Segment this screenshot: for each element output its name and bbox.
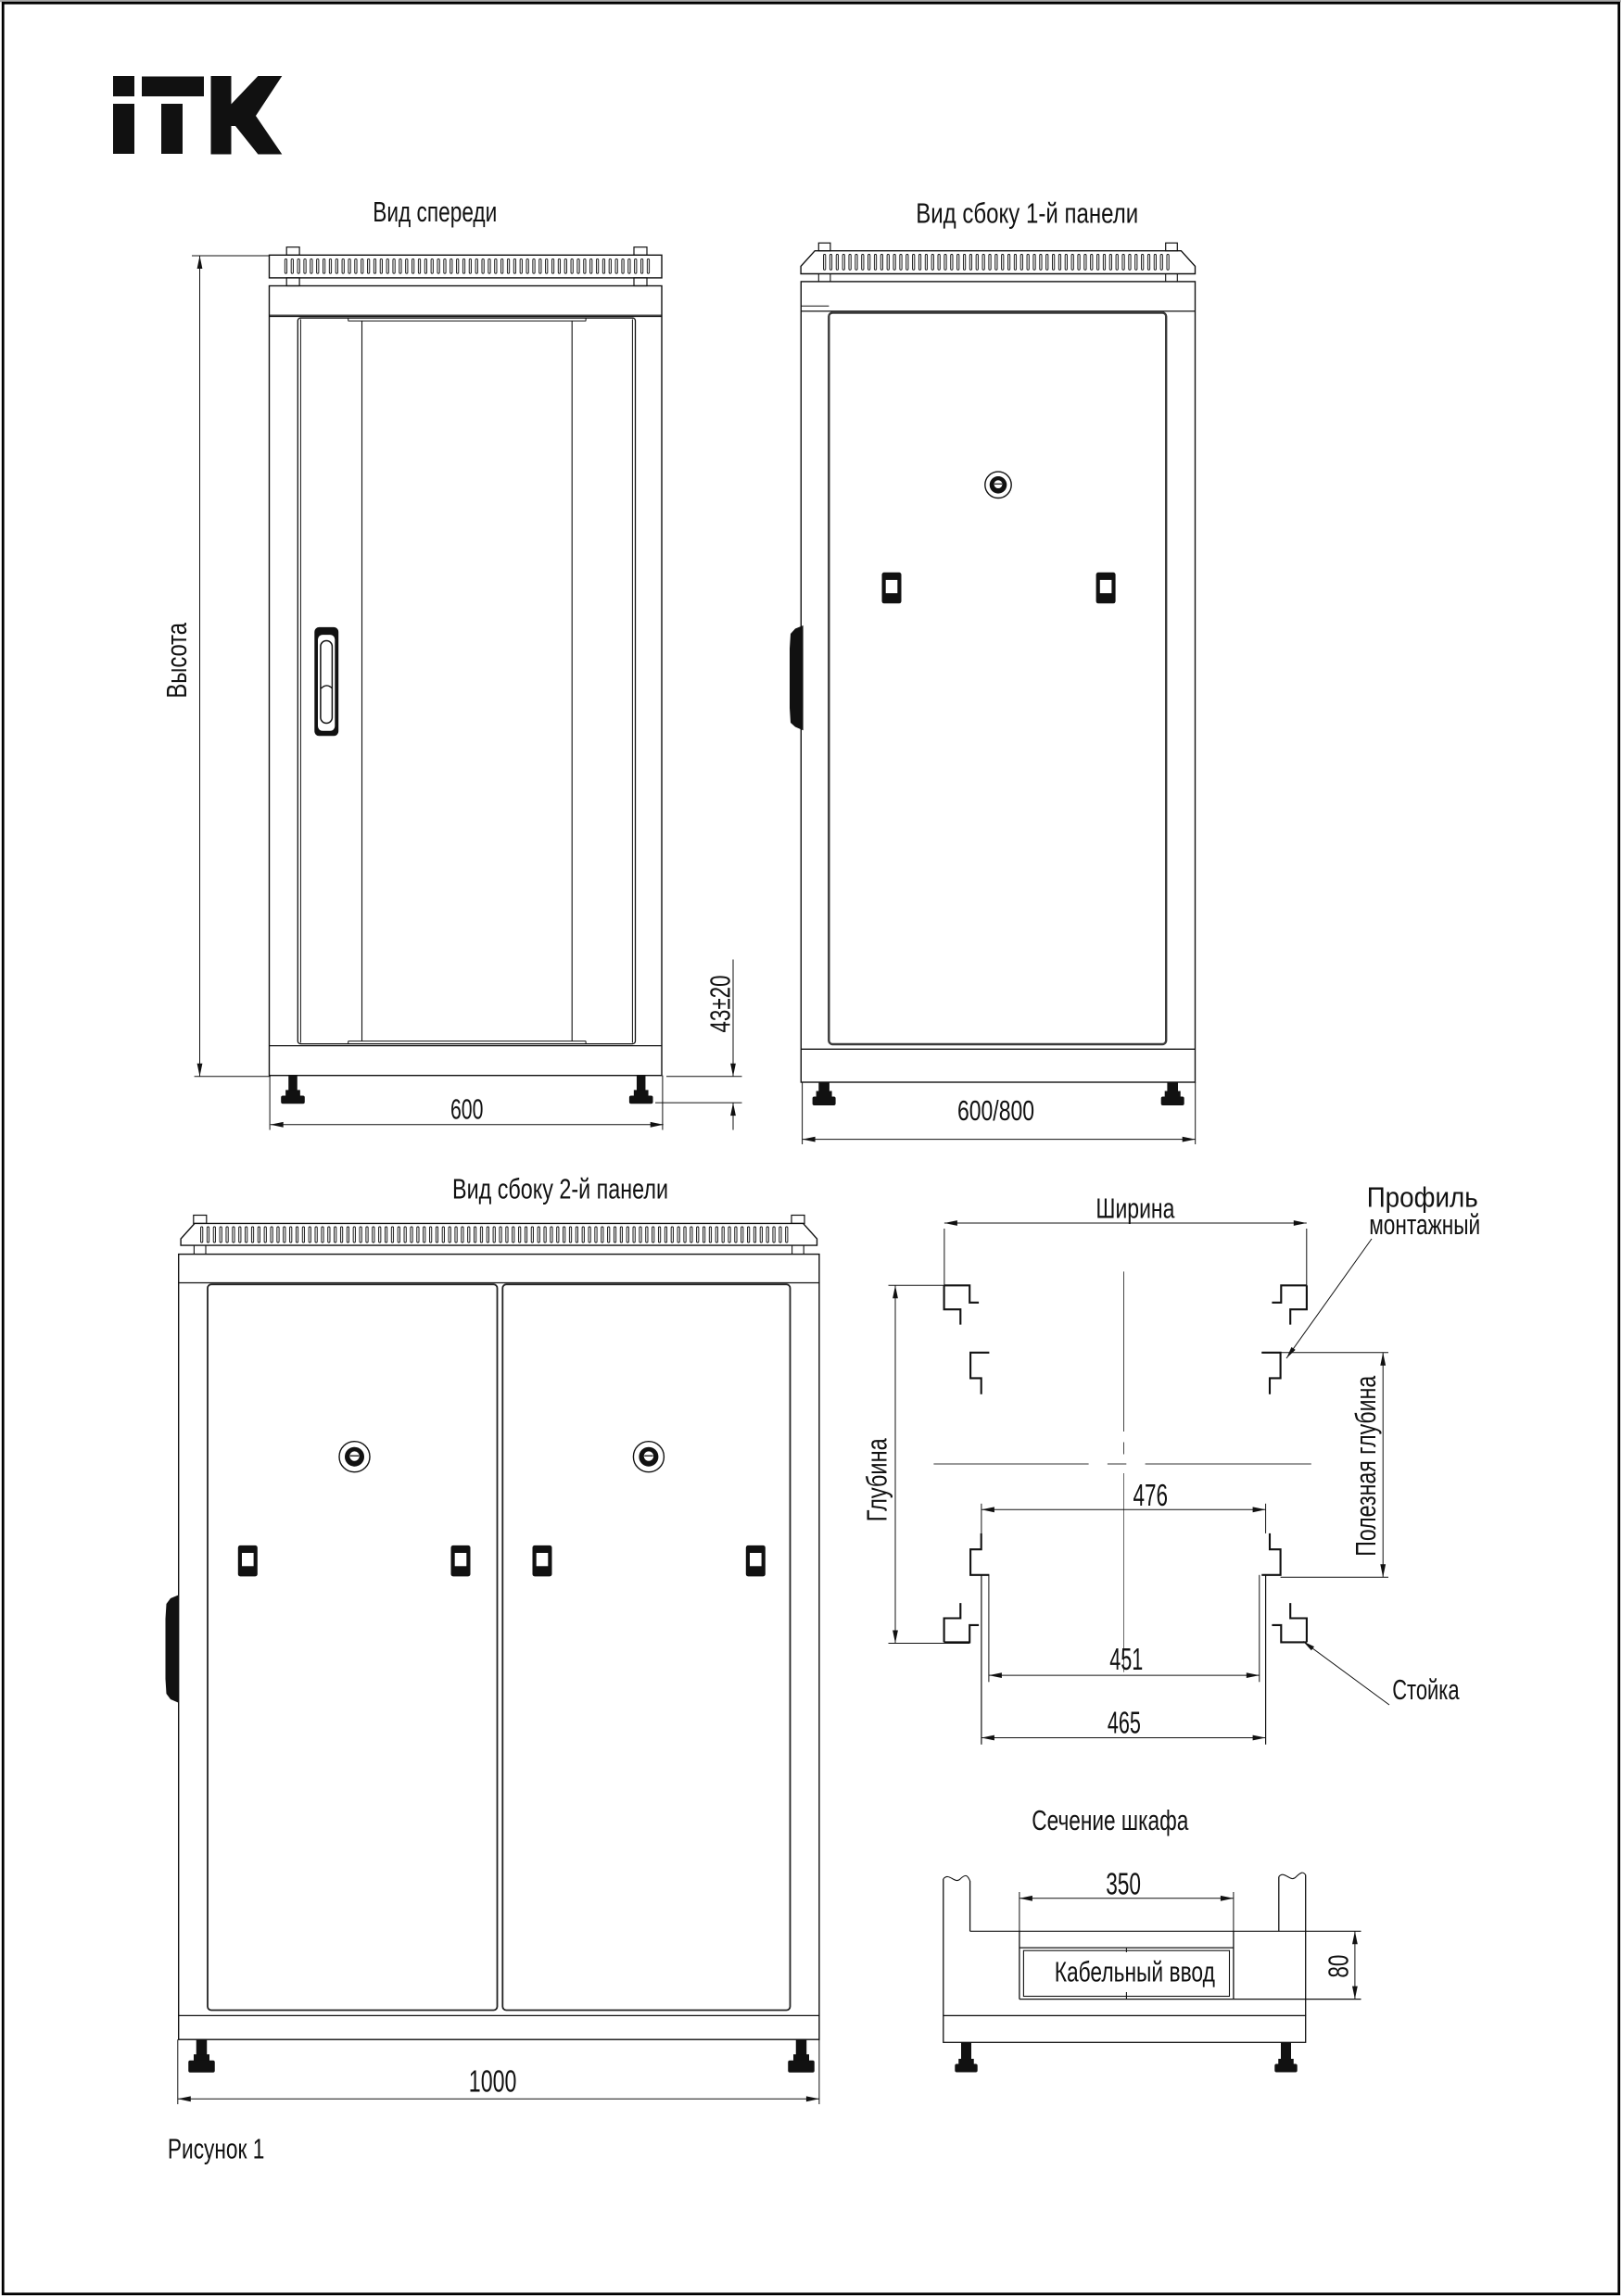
svg-text:Вид сбоку 2-й панели: Вид сбоку 2-й панели [452,1173,668,1205]
svg-text:350: 350 [1106,1866,1141,1900]
svg-text:1000: 1000 [469,2063,517,2098]
svg-text:465: 465 [1108,1706,1141,1740]
svg-text:Сечение шкафа: Сечение шкафа [1032,1804,1189,1836]
svg-text:476: 476 [1133,1478,1168,1512]
svg-text:Полезная глубина: Полезная глубина [1349,1375,1382,1557]
svg-text:Рисунок 1: Рисунок 1 [168,2133,265,2165]
svg-text:Вид сбоку 1-й панели: Вид сбоку 1-й панели [916,197,1138,230]
svg-text:600: 600 [450,1093,484,1126]
svg-text:Стойка: Стойка [1392,1673,1460,1706]
svg-text:80: 80 [1323,1955,1355,1978]
svg-text:Ширина: Ширина [1095,1192,1175,1225]
svg-text:Глубина: Глубина [861,1438,893,1522]
svg-text:451: 451 [1109,1642,1143,1676]
svg-text:монтажный: монтажный [1369,1208,1480,1241]
svg-text:43±20: 43±20 [704,976,737,1033]
svg-text:Кабельный ввод: Кабельный ввод [1055,1956,1215,1988]
svg-text:Высота: Высота [160,622,193,698]
svg-text:Вид спереди: Вид спереди [373,196,497,228]
svg-text:600/800: 600/800 [957,1094,1034,1127]
